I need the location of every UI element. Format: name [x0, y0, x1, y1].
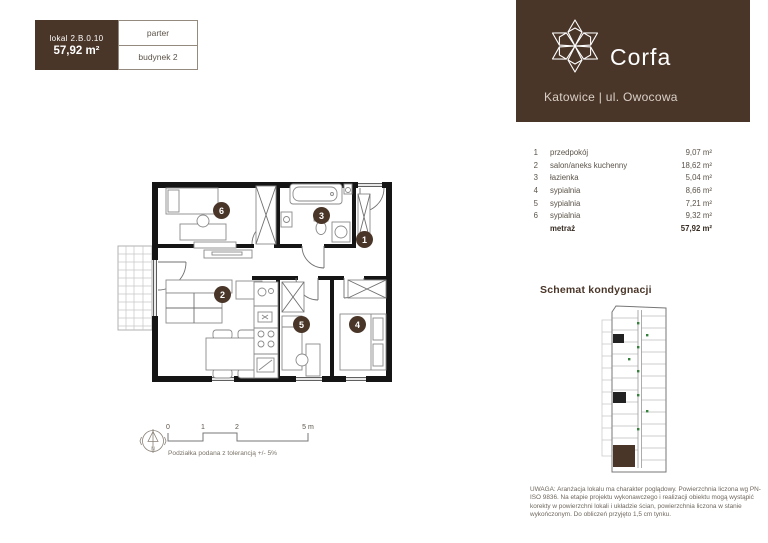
building-schematic [590, 300, 700, 485]
unit-card-area-box: lokal 2.B.0.10 57,92 m² [35, 20, 118, 70]
unit-card-floor-box: parter budynek 2 [118, 20, 198, 70]
disclaimer-text: UWAGA: Aranżacja lokalu ma charakter pog… [530, 486, 762, 519]
room-num: 5 [528, 199, 538, 208]
room-marker-3: 3 [313, 207, 330, 224]
room-name: salon/aneks kuchenny [550, 161, 681, 170]
room-marker-1: 1 [356, 231, 373, 248]
room-area: 7,21 m² [686, 199, 712, 208]
brand-location: Katowice | ul. Owocowa [544, 90, 678, 104]
total-area: 57,92 m² [681, 224, 712, 233]
room-name: przedpokój [550, 148, 686, 157]
room-num: 6 [528, 211, 538, 220]
legend-row: 4 sypialnia 8,66 m² [528, 184, 712, 197]
unit-card: lokal 2.B.0.10 57,92 m² parter budynek 2 [35, 20, 198, 70]
room-name: sypialnia [550, 199, 686, 208]
scale-bar: N 0 1 2 5 m [134, 420, 324, 465]
balcony [118, 246, 152, 330]
unit-building: budynek 2 [119, 46, 197, 70]
total-label: metraż [550, 224, 681, 233]
room-area: 9,07 m² [686, 148, 712, 157]
room-num: 1 [528, 148, 538, 157]
room-name: łazienka [550, 173, 686, 182]
legend-row: 6 sypialnia 9,32 m² [528, 209, 712, 222]
scale-tick-5m: 5 m [302, 424, 314, 431]
legend-row: 2 salon/aneks kuchenny 18,62 m² [528, 159, 712, 172]
scale-tick-1: 1 [201, 424, 205, 431]
room-legend: 1 przedpokój 9,07 m² 2 salon/aneks kuche… [528, 146, 712, 235]
room-area: 18,62 m² [681, 161, 712, 170]
room-area: 5,04 m² [686, 173, 712, 182]
highlighted-unit [613, 445, 635, 467]
brand-name: Corfa [610, 44, 671, 71]
legend-row: 5 sypialnia 7,21 m² [528, 197, 712, 210]
legend-row: 3 łazienka 5,04 m² [528, 171, 712, 184]
scale-tick-2: 2 [235, 424, 239, 431]
room-marker-6: 6 [213, 202, 230, 219]
unit-area: 57,92 m² [53, 45, 99, 57]
legend-total-row: 0 metraż 57,92 m² [528, 222, 712, 235]
room-num: 3 [528, 173, 538, 182]
room-name: sypialnia [550, 211, 686, 220]
furniture-livingroom [166, 250, 268, 378]
room-area: 8,66 m² [686, 186, 712, 195]
schematic-title: Schemat kondygnacji [540, 284, 652, 296]
unit-floor: parter [119, 21, 197, 46]
room-marker-2: 2 [214, 286, 231, 303]
room-num: 4 [528, 186, 538, 195]
scale-tick-0: 0 [166, 424, 170, 431]
furniture-kitchen [254, 282, 278, 378]
room-area: 9,32 m² [686, 211, 712, 220]
room-marker-4: 4 [349, 316, 366, 333]
scale-tolerance-note: Podziałka podana z tolerancją +/- 5% [168, 450, 277, 457]
room-name: sypialnia [550, 186, 686, 195]
stair-core [613, 334, 624, 343]
floor-plan [112, 168, 404, 412]
unit-number: lokal 2.B.0.10 [49, 34, 103, 43]
room-marker-5: 5 [293, 316, 310, 333]
compass-north-label: N [151, 447, 155, 453]
brand-logo-icon [544, 13, 606, 79]
brand-header: Corfa Katowice | ul. Owocowa [516, 0, 750, 122]
room-num: 2 [528, 161, 538, 170]
stair-core [613, 392, 626, 403]
legend-row: 1 przedpokój 9,07 m² [528, 146, 712, 159]
